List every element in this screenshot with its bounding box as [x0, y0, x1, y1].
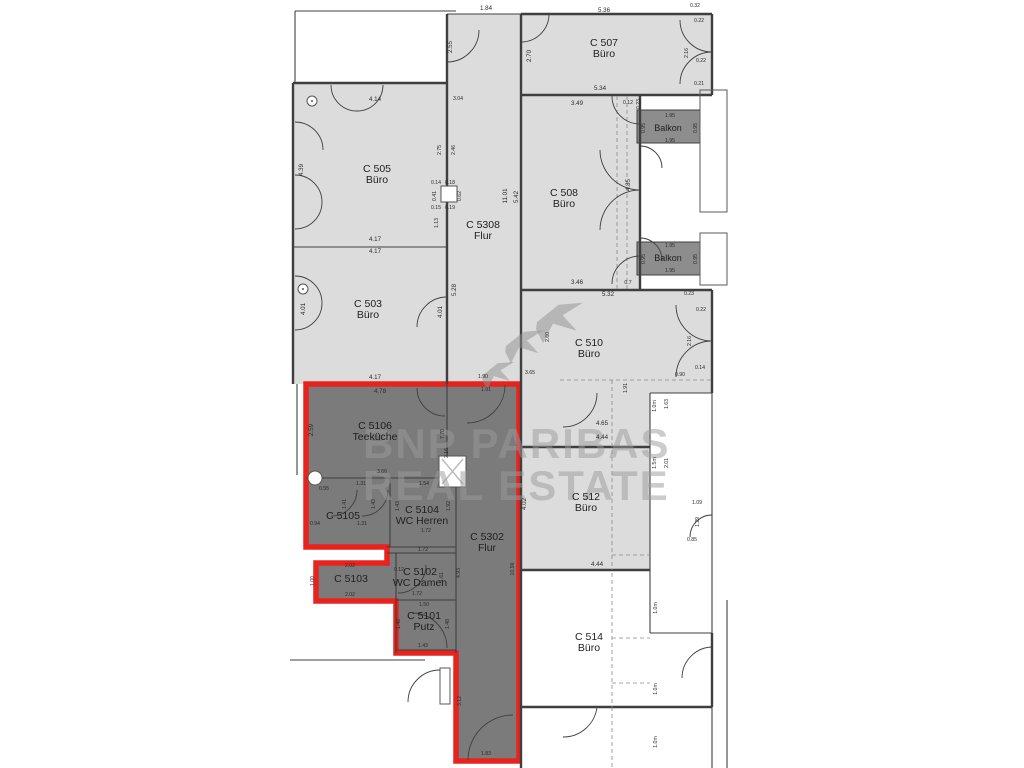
dimension-label: 1.29 — [695, 517, 701, 527]
dimension-label: 4.17 — [369, 374, 382, 381]
dimension-label: 1.0m — [653, 602, 659, 614]
dimension-label: 0.12 — [394, 567, 404, 573]
dimension-label: 0.41 — [432, 191, 438, 201]
dimension-label: 0.15 — [431, 205, 441, 211]
dimension-label: 1.72 — [421, 528, 431, 534]
room-type-label-c5302: Flur — [478, 542, 497, 554]
dimension-label: 3.46 — [571, 279, 584, 286]
dimension-label: 5.36 — [598, 7, 611, 14]
dimension-label: 0.62 — [457, 191, 463, 201]
dimension-label: 1.91 — [623, 383, 629, 393]
floor-plan: BNP PARIBAS REAL ESTATE C 505BüroC 503Bü… — [0, 0, 1024, 768]
dimension-label: 2.59 — [308, 423, 315, 436]
dimension-label: 1.00 — [310, 576, 316, 586]
dimension-label: 4.17 — [369, 236, 382, 243]
room-type-label-c5308: Flur — [474, 230, 493, 242]
room-type-label-c5104: WC Herren — [396, 515, 449, 527]
dimension-label: 4.44 — [596, 434, 609, 441]
room-label-c5105: C 5105 — [326, 510, 360, 522]
dimension-label: 4.01 — [437, 305, 444, 318]
column-circle-highlight-edge — [308, 471, 322, 485]
dimension-label: 0.22 — [696, 307, 706, 313]
dimension-label: 7.70 — [440, 429, 446, 439]
dimension-label: 2.16 — [444, 448, 450, 458]
shaft-box-upper — [441, 186, 457, 202]
dimension-label: 2.02 — [345, 592, 355, 598]
room-type-label-c5106: Teeküche — [353, 431, 398, 443]
dimension-label: 1.5m — [652, 457, 658, 469]
dimension-label: 0.95 — [641, 123, 647, 133]
dimension-label: 1.91 — [481, 387, 491, 393]
room-type-label-c5101: Putz — [413, 621, 434, 633]
dimension-label: 1.95 — [665, 138, 675, 144]
dimension-label: 2.02 — [345, 563, 355, 569]
dimension-label: 0.95 — [641, 254, 647, 264]
dimension-label: 1.13 — [434, 218, 440, 228]
dimension-label: 4.44 — [591, 561, 604, 568]
dimension-label: 0.95 — [693, 123, 699, 133]
dimension-label: 2.01 — [664, 458, 670, 468]
room-label-balkon-2: Balkon — [654, 253, 682, 263]
room-type-label-c512: Büro — [575, 502, 597, 514]
dimension-label: 5.28 — [451, 283, 458, 296]
dimension-label: 0.32 — [690, 3, 700, 9]
column-dot — [302, 288, 304, 290]
dimension-label: 1.0m — [653, 683, 659, 695]
dimension-label: 4.93 — [456, 568, 462, 578]
dimension-label: 3.12 — [457, 696, 463, 706]
room-type-label-c507: Büro — [593, 48, 615, 60]
room-label-c5103: C 5103 — [334, 573, 368, 585]
dimension-label: 4.14 — [369, 96, 382, 103]
dimension-label: 1.54 — [419, 481, 429, 487]
room-label-balkon-1: Balkon — [654, 123, 682, 133]
dimension-label: 1.72 — [412, 591, 422, 597]
dimension-label: 1.41 — [342, 499, 348, 509]
room-type-label-c508: Büro — [553, 198, 575, 210]
room-type-label-c503: Büro — [357, 309, 379, 321]
dimension-label: 4.02 — [521, 497, 528, 510]
dimension-label: 1.61 — [439, 572, 445, 582]
dimension-label: 0.22 — [696, 58, 706, 64]
dimension-label: 5.34 — [594, 85, 607, 92]
dimension-label: 4.01 — [300, 302, 307, 315]
dimension-label: 0.14 — [431, 180, 441, 186]
dimension-label: 0.14 — [695, 365, 705, 371]
dimension-label: 3.66 — [377, 469, 387, 475]
dimension-label: 1.95 — [665, 268, 675, 274]
room-c508-area — [521, 95, 640, 290]
dimension-label: 1.43 — [371, 499, 377, 509]
dimension-label: 2.16 — [687, 336, 693, 346]
dimension-label: 1.83 — [481, 751, 491, 757]
dimension-label: 0.19 — [445, 205, 455, 211]
dimension-label: 2.70 — [526, 49, 533, 62]
dimension-label: 1.43 — [395, 501, 401, 511]
watermark-line-2: REAL ESTATE — [363, 462, 670, 509]
room-c505-c503-area — [293, 83, 447, 384]
dimension-label: 4.17 — [369, 248, 382, 255]
dimension-label: 0.90 — [675, 372, 685, 378]
dimension-label: 1.63 — [664, 399, 670, 409]
dimension-label: 0.23 — [684, 291, 694, 297]
dimension-label: 1.95 — [665, 243, 675, 249]
room-type-label-c505: Büro — [366, 174, 388, 186]
dimension-label: 1.31 — [357, 521, 367, 527]
watermark-line-1: BNP PARIBAS — [363, 420, 671, 467]
column-dot — [311, 100, 313, 102]
dimension-label: 1.90 — [478, 374, 488, 380]
dimension-label: 0.23 — [636, 99, 642, 109]
dimension-label: 1.72 — [418, 547, 428, 553]
dimension-label: 1.31 — [356, 481, 366, 487]
dimension-label: 1.92 — [446, 501, 452, 511]
dimension-label: 4.85 — [625, 178, 632, 191]
dimension-label: 4.65 — [596, 420, 609, 427]
dimension-label: 0.55 — [319, 486, 329, 492]
dimension-label: 10.96 — [510, 562, 516, 575]
dimension-label: 1.0m — [653, 736, 659, 748]
dimension-label: 0.12 — [623, 100, 633, 106]
dimension-label: 2.75 — [437, 145, 443, 155]
dimension-label: 1.95 — [665, 113, 675, 119]
dimension-label: 2.16 — [684, 48, 690, 58]
room-type-label-c510: Büro — [578, 348, 600, 360]
dimension-label: 4.39 — [298, 163, 305, 176]
dimension-label: 1.0m — [652, 400, 658, 412]
dimension-label: 2.60 — [545, 332, 551, 342]
dimension-label: 1.50 — [419, 602, 429, 608]
dimension-label: 1.48 — [396, 619, 402, 629]
dimension-label: 2.55 — [447, 40, 454, 53]
dimension-label: 0.18 — [445, 180, 455, 186]
dimension-label: 1.09 — [692, 500, 702, 506]
dimension-label: 5.32 — [602, 291, 615, 298]
dimension-label: 0.95 — [693, 254, 699, 264]
dimension-label: 0.94 — [310, 521, 320, 527]
dimension-label: 0.85 — [687, 537, 697, 543]
dimension-label: 11.01 — [502, 188, 509, 204]
dimension-label: 0.21 — [694, 81, 704, 87]
dimension-label: 4.78 — [374, 388, 387, 395]
dimension-label: 2.46 — [451, 145, 457, 155]
dimension-label: 3.49 — [571, 100, 584, 107]
dimension-label: 1.43 — [418, 643, 428, 649]
dimension-label: 0.22 — [694, 18, 704, 24]
dimension-label: 3.65 — [525, 370, 535, 376]
dimension-label: 0.7 — [624, 280, 631, 286]
room-type-label-c514: Büro — [578, 642, 600, 654]
dimension-label: 5.42 — [513, 190, 520, 203]
dimension-label: 1.84 — [480, 5, 493, 12]
dimension-label: 1.48 — [445, 619, 451, 629]
dimension-label: 3.04 — [453, 96, 463, 102]
